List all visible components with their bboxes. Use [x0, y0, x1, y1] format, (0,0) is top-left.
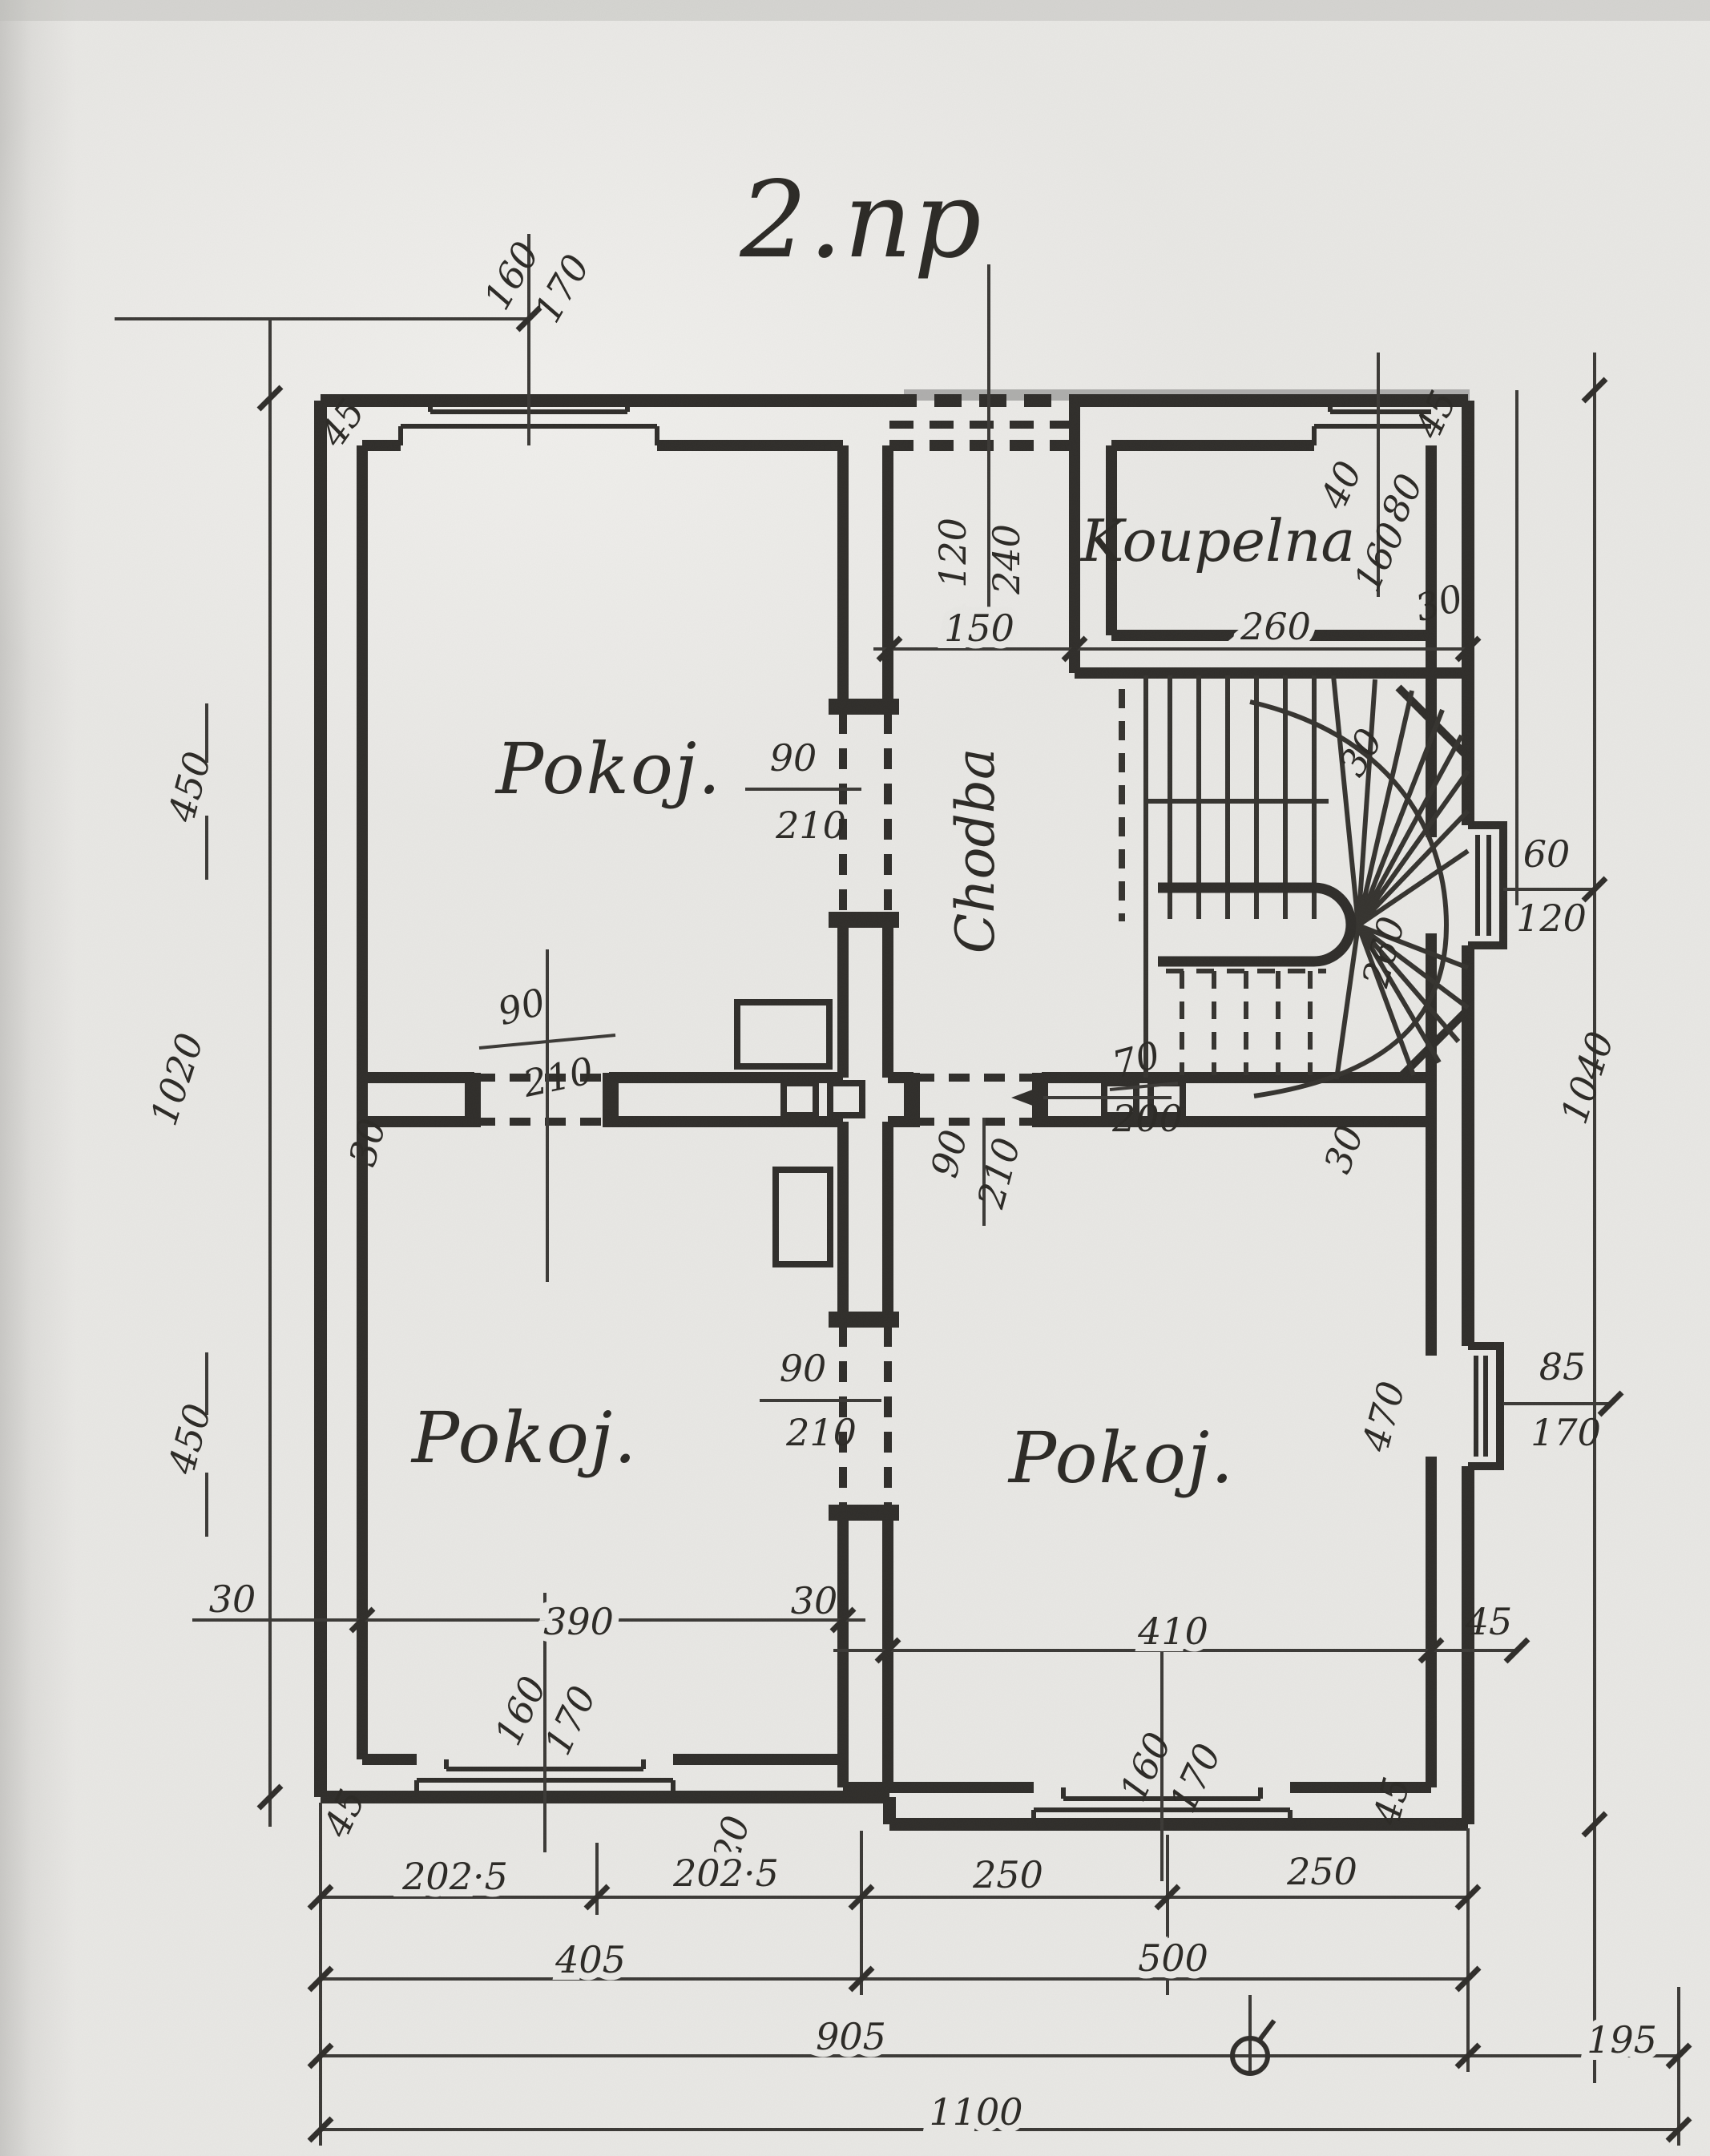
floor-plan-svg: 2.np Pokoj. Pokoj. Pokoj. Koupelna Chodb… — [0, 0, 1710, 2156]
paper-texture — [0, 0, 1710, 2156]
scanned-floor-plan: 2.np Pokoj. Pokoj. Pokoj. Koupelna Chodb… — [0, 0, 1710, 2156]
